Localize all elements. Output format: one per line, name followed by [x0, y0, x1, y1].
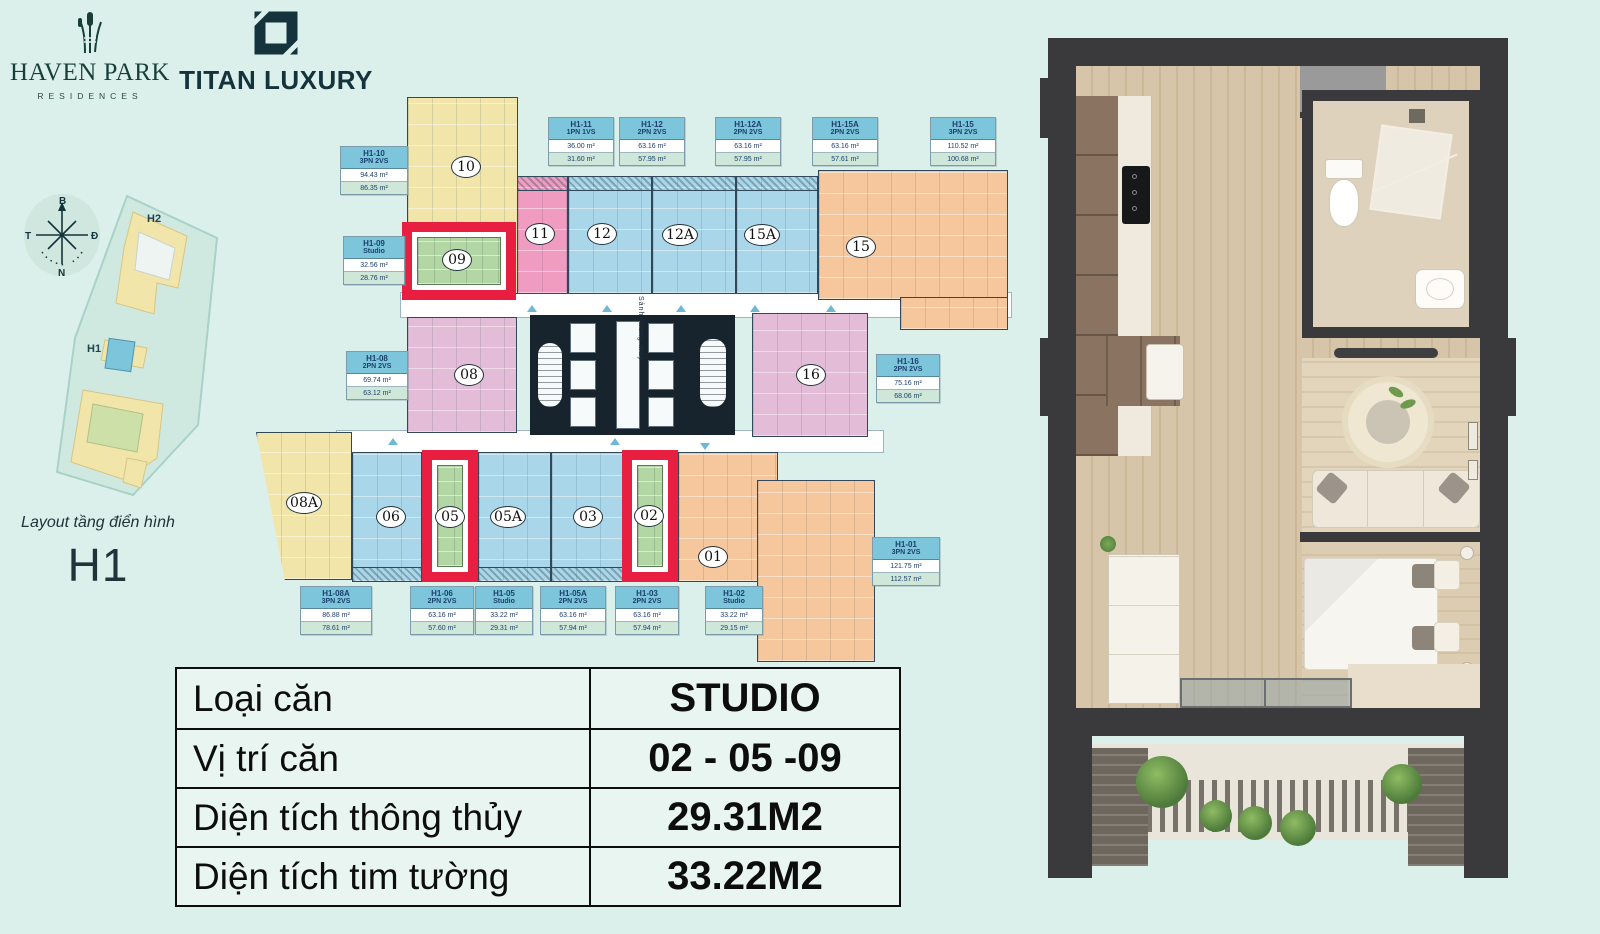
table-label-net-area: Diện tích thông thủy [177, 787, 589, 846]
unit-01-extension [757, 480, 875, 662]
titan-luxury-title: TITAN LUXURY [176, 65, 376, 96]
toilet-icon [1329, 179, 1359, 227]
floor-code: H1 [14, 538, 182, 592]
planter-box [1092, 748, 1148, 866]
unit-card-h1-12a: H1-12A 2PN 2VS 63.16 m² 57.95 m² [715, 117, 781, 166]
planter-box [1408, 748, 1464, 866]
table-label-unit-position: Vị trí căn [177, 728, 589, 787]
unit-card-area-net: 57.61 m² [813, 153, 877, 165]
elevator-cell [570, 397, 596, 427]
unit-card-area-gross: 63.16 m² [620, 140, 684, 153]
page: HAVEN PARK RESIDENCES TITAN LUXURY B Đ N… [0, 0, 1600, 934]
unit-card-code: H1-05A [542, 589, 604, 598]
unit-card-h1-06: H1-06 2PN 2VS 63.16 m² 57.60 m² [410, 586, 474, 635]
unit-card-area-net: 29.15 m² [706, 622, 762, 634]
shower-head [1409, 109, 1425, 123]
titan-luxury-logo: TITAN LUXURY [176, 10, 376, 96]
bed-pillow [1434, 560, 1460, 590]
direction-marker [700, 443, 710, 450]
unit-card-code: H1-08A [302, 589, 370, 598]
plant-icon [1238, 806, 1272, 840]
unit-card-area-gross: 63.16 m² [616, 609, 678, 622]
unit-card-type: 2PN 2VS [412, 598, 472, 606]
unit-number-16: 16 [796, 364, 826, 386]
unit-card-area-gross: 33.22 m² [476, 609, 532, 622]
unit-card-h1-05: H1-05 Studio 33.22 m² 29.31 m² [475, 586, 533, 635]
direction-marker [676, 305, 686, 312]
unit-card-area-net: 57.95 m² [620, 153, 684, 165]
unit-card-type: 2PN 2VS [621, 129, 683, 137]
plant-icon [1387, 385, 1405, 400]
unit-number-15: 15 [846, 236, 876, 258]
haven-park-title: HAVEN PARK [6, 59, 174, 87]
unit-card-area-gross: 33.22 m² [706, 609, 762, 622]
plant-icon [1100, 536, 1116, 552]
plant-icon [1136, 756, 1188, 808]
stairwell [536, 341, 564, 409]
table-value-net-area: 29.31M2 [589, 787, 899, 846]
balcony-sliding-door [1180, 678, 1352, 708]
unit-card-area-net: 29.31 m² [476, 622, 532, 634]
unit-card-area-gross: 63.16 m² [716, 140, 780, 153]
table-label-unit-type: Loại căn [177, 669, 589, 728]
unit-card-code: H1-15 [932, 120, 994, 129]
table-value-gross-area: 33.22M2 [589, 846, 899, 905]
unit-card-area-net: 86.35 m² [341, 182, 407, 194]
wall-art [1468, 422, 1478, 450]
elevator-core [530, 315, 735, 435]
wall-column [1506, 338, 1516, 416]
unit-card-area-net: 57.60 m² [411, 622, 473, 634]
unit-card-area-gross: 121.75 m² [873, 560, 939, 573]
unit-card-h1-05a: H1-05A 2PN 2VS 63.16 m² 57.94 m² [540, 586, 606, 635]
wall-column [1040, 78, 1050, 138]
unit-card-type: Studio [477, 598, 531, 606]
direction-marker [602, 305, 612, 312]
unit-card-area-gross: 69.74 m² [347, 374, 407, 387]
unit-card-area-gross: 63.16 m² [411, 609, 473, 622]
unit-card-type: 2PN 2VS [542, 598, 604, 606]
bedside-lamp [1460, 546, 1474, 560]
elevator-cell [648, 323, 674, 353]
haven-park-subtitle: RESIDENCES [6, 91, 174, 101]
studio-walls [1048, 38, 1508, 736]
unit-card-type: 2PN 2VS [814, 129, 876, 137]
corridor-label: Sảnh thang máy [637, 296, 644, 361]
unit-card-code: H1-09 [345, 239, 403, 248]
unit-card-h1-02: H1-02 Studio 33.22 m² 29.15 m² [705, 586, 763, 635]
balcony-deck [1092, 744, 1464, 840]
unit-card-type: Studio [345, 248, 403, 256]
unit-card-code: H1-08 [348, 354, 406, 363]
wardrobe [1108, 554, 1180, 704]
layout-caption: Layout tầng điển hình H1 [14, 514, 182, 592]
unit-card-area-net: 57.94 m² [616, 622, 678, 634]
unit-card-type: Studio [707, 598, 761, 606]
table-value-unit-position: 02 - 05 -09 [589, 728, 899, 787]
direction-marker [826, 305, 836, 312]
unit-card-type: 3PN 2VS [302, 598, 370, 606]
unit-card-area-gross: 63.16 m² [541, 609, 605, 622]
ac-unit [1334, 348, 1438, 358]
bed-rug [1348, 664, 1480, 708]
unit-number-10: 10 [451, 156, 481, 178]
unit-card-code: H1-05 [477, 589, 531, 598]
site-map-h1-label: H1 [87, 343, 101, 355]
unit-card-code: H1-12 [621, 120, 683, 129]
unit-number-09: 09 [442, 249, 472, 271]
unit-number-01: 01 [698, 546, 728, 568]
unit-number-08a: 08A [286, 492, 322, 514]
stairwell [698, 337, 728, 409]
reed-icon [70, 8, 110, 54]
unit-card-code: H1-06 [412, 589, 472, 598]
elevator-cell [648, 397, 674, 427]
direction-marker [610, 438, 620, 445]
unit-number-02: 02 [634, 505, 664, 527]
unit-card-type: 2PN 2VS [878, 366, 938, 374]
plant-icon [1399, 398, 1417, 411]
unit-card-type: 2PN 2VS [717, 129, 779, 137]
unit-card-area-gross: 63.16 m² [813, 140, 877, 153]
unit-card-area-net: 57.95 m² [716, 153, 780, 165]
unit-card-code: H1-15A [814, 120, 876, 129]
unit-card-area-gross: 32.56 m² [344, 259, 404, 272]
shower-glass [1369, 124, 1452, 219]
unit-card-area-gross: 86.88 m² [301, 609, 371, 622]
unit-card-h1-03: H1-03 2PN 2VS 63.16 m² 57.94 m² [615, 586, 679, 635]
unit-card-h1-08: H1-08 2PN 2VS 69.74 m² 63.12 m² [346, 351, 408, 400]
plant-icon [1200, 800, 1232, 832]
unit-card-code: H1-11 [550, 120, 612, 129]
unit-card-code: H1-16 [878, 357, 938, 366]
site-map: H2 H1 [35, 190, 240, 510]
unit-card-h1-16: H1-16 2PN 2VS 75.16 m² 68.06 m² [876, 354, 940, 403]
unit-card-area-net: 31.60 m² [549, 153, 613, 165]
direction-marker [527, 305, 537, 312]
bed-pillow [1434, 622, 1460, 652]
unit-number-08: 08 [454, 364, 484, 386]
unit-card-code: H1-12A [717, 120, 779, 129]
unit-card-h1-11: H1-11 1PN 1VS 36.00 m² 31.60 m² [548, 117, 614, 166]
unit-number-06: 06 [376, 506, 406, 528]
balcony-wall-right [1464, 736, 1508, 878]
unit-card-area-net: 112.57 m² [873, 573, 939, 585]
unit-card-area-net: 68.06 m² [877, 390, 939, 402]
unit-card-type: 2PN 2VS [348, 363, 406, 371]
unit-card-h1-09: H1-09 Studio 32.56 m² 28.76 m² [343, 236, 405, 285]
unit-card-type: 1PN 1VS [550, 129, 612, 137]
unit-card-area-net: 28.76 m² [344, 272, 404, 284]
plant-icon [1280, 810, 1316, 846]
titan-square-icon [253, 10, 299, 56]
unit-card-area-gross: 94.43 m² [341, 169, 407, 182]
unit-card-area-net: 57.94 m² [541, 622, 605, 634]
unit-card-h1-08a: H1-08A 3PN 2VS 86.88 m² 78.61 m² [300, 586, 372, 635]
unit-card-type: 2PN 2VS [617, 598, 677, 606]
unit-summary-table: Loại căn STUDIO Vị trí căn 02 - 05 -09 D… [175, 667, 901, 907]
unit-number-12: 12 [587, 223, 617, 245]
direction-marker [388, 438, 398, 445]
wall-art [1468, 460, 1478, 480]
unit-card-h1-01: H1-01 3PN 2VS 121.75 m² 112.57 m² [872, 537, 940, 586]
unit-card-h1-12: H1-12 2PN 2VS 63.16 m² 57.95 m² [619, 117, 685, 166]
unit-card-h1-15a: H1-15A 2PN 2VS 63.16 m² 57.61 m² [812, 117, 878, 166]
unit-15-extension [900, 297, 1008, 330]
unit-card-type: 3PN 2VS [932, 129, 994, 137]
plant-icon [1382, 764, 1422, 804]
bathroom [1302, 90, 1480, 338]
unit-card-code: H1-03 [617, 589, 677, 598]
unit-15 [818, 170, 1008, 300]
unit-card-area-net: 78.61 m² [301, 622, 371, 634]
layout-caption-text: Layout tầng điển hình [14, 514, 182, 532]
round-rug [1342, 376, 1434, 468]
elevator-cell [570, 360, 596, 390]
compass-west-label: T [25, 231, 31, 242]
partition-wall [1300, 532, 1480, 542]
unit-card-area-gross: 75.16 m² [877, 377, 939, 390]
unit-card-type: 3PN 2VS [342, 158, 406, 166]
unit-card-code: H1-01 [874, 540, 938, 549]
unit-number-03: 03 [573, 506, 603, 528]
unit-number-05: 05 [435, 506, 465, 528]
washer-appliance [1146, 344, 1184, 400]
unit-card-h1-15: H1-15 3PN 2VS 110.52 m² 100.68 m² [930, 117, 996, 166]
unit-card-area-net: 100.68 m² [931, 153, 995, 165]
studio-3d-render [1048, 38, 1508, 878]
wall-column [1040, 338, 1050, 416]
balcony-wall-left [1048, 736, 1092, 878]
toilet-tank [1325, 159, 1363, 179]
unit-number-15a: 15A [744, 224, 780, 246]
unit-number-11: 11 [525, 223, 555, 245]
unit-number-05a: 05A [490, 506, 526, 528]
unit-card-type: 3PN 2VS [874, 549, 938, 557]
direction-marker [750, 305, 760, 312]
table-label-gross-area: Diện tích tim tường [177, 846, 589, 905]
unit-card-area-gross: 36.00 m² [549, 140, 613, 153]
unit-card-code: H1-02 [707, 589, 761, 598]
elevator-cell [570, 323, 596, 353]
bathroom-sink [1415, 269, 1465, 309]
unit-card-h1-10: H1-10 3PN 2VS 94.43 m² 86.35 m² [340, 146, 408, 195]
unit-card-area-gross: 110.52 m² [931, 140, 995, 153]
unit-card-code: H1-10 [342, 149, 406, 158]
unit-number-12a: 12A [662, 224, 698, 246]
haven-park-logo: HAVEN PARK RESIDENCES [6, 8, 174, 101]
unit-card-area-net: 63.12 m² [347, 387, 407, 399]
site-map-h2-label: H2 [147, 213, 161, 225]
table-value-unit-type: STUDIO [589, 669, 899, 728]
cooktop [1122, 166, 1150, 224]
elevator-cell [648, 360, 674, 390]
